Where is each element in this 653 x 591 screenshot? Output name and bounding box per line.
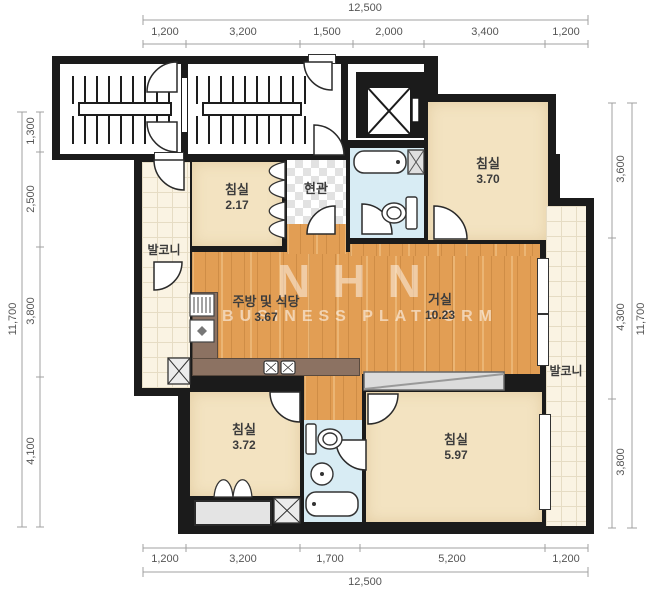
kitchen-counter-horizontal [192, 358, 360, 376]
room-label-bedroom-top-left: 침실 2.17 [192, 182, 282, 213]
dim-top-total: 12,500 [335, 2, 395, 14]
room-label-bedroom-top-right: 침실 3.70 [443, 156, 533, 187]
room-label-balcony-right: 발코니 [536, 364, 596, 379]
dim-top-seg: 2,000 [359, 26, 419, 38]
stair-hatch [72, 116, 178, 144]
room-label-balcony-left: 발코니 [134, 243, 194, 258]
stair-hatch [196, 116, 308, 144]
dim-top-seg: 1,500 [297, 26, 357, 38]
lobby-divider-wall [341, 64, 348, 154]
room-bathroom-bottom [304, 420, 362, 522]
room-label-entrance: 현관 [286, 181, 346, 197]
dim-left-seg: 3,800 [25, 281, 37, 341]
elevator-car [368, 88, 410, 134]
dim-right-seg: 3,600 [615, 139, 627, 199]
dim-right-total: 11,700 [635, 289, 647, 349]
dim-right-seg: 4,300 [615, 287, 627, 347]
room-label-kitchen: 주방 및 식당 3.67 [206, 294, 326, 325]
dim-right-seg: 3,800 [615, 432, 627, 492]
stair-landing-rail [78, 102, 172, 116]
hall-wood-lower [304, 374, 362, 420]
dim-top-seg: 1,200 [135, 26, 195, 38]
room-bathroom-top [350, 148, 424, 238]
dim-left-seg: 1,300 [25, 101, 37, 161]
bedroom-bottom-right-window [539, 414, 551, 510]
hall-wood-entrance [287, 224, 346, 254]
living-room-window-2 [537, 314, 549, 366]
dim-bottom-seg: 1,200 [135, 553, 195, 565]
balcony-left-top-window [154, 152, 184, 162]
stair-divider-window [182, 78, 187, 132]
dim-left-seg: 2,500 [25, 169, 37, 229]
room-label-bedroom-bottom-right: 침실 5.97 [411, 432, 501, 463]
dim-left-total: 11,700 [7, 289, 19, 349]
dim-left-seg: 4,100 [25, 421, 37, 481]
dim-top-seg: 1,200 [536, 26, 596, 38]
dim-bottom-seg: 1,700 [300, 553, 360, 565]
utility-strip [194, 500, 272, 526]
room-label-bedroom-bottom-left: 침실 3.72 [199, 422, 289, 453]
dim-top-seg: 3,200 [213, 26, 273, 38]
room-label-living: 거실 10.23 [395, 292, 485, 323]
dim-top-seg: 3,400 [455, 26, 515, 38]
living-room-window [537, 258, 549, 314]
staircase-left [72, 74, 178, 146]
dim-bottom-seg: 3,200 [213, 553, 273, 565]
staircase-right [196, 74, 308, 146]
stair-hatch [196, 76, 308, 104]
floor-plan: NHN BUSINESS PLATFORM [0, 0, 653, 591]
room-balcony-left [142, 162, 190, 388]
stair-hatch [72, 76, 178, 104]
dim-bottom-total: 12,500 [335, 576, 395, 588]
stair-landing-rail [202, 102, 302, 116]
dim-bottom-seg: 5,200 [422, 553, 482, 565]
dim-bottom-seg: 1,200 [536, 553, 596, 565]
stair-hall-top-window [308, 54, 336, 64]
